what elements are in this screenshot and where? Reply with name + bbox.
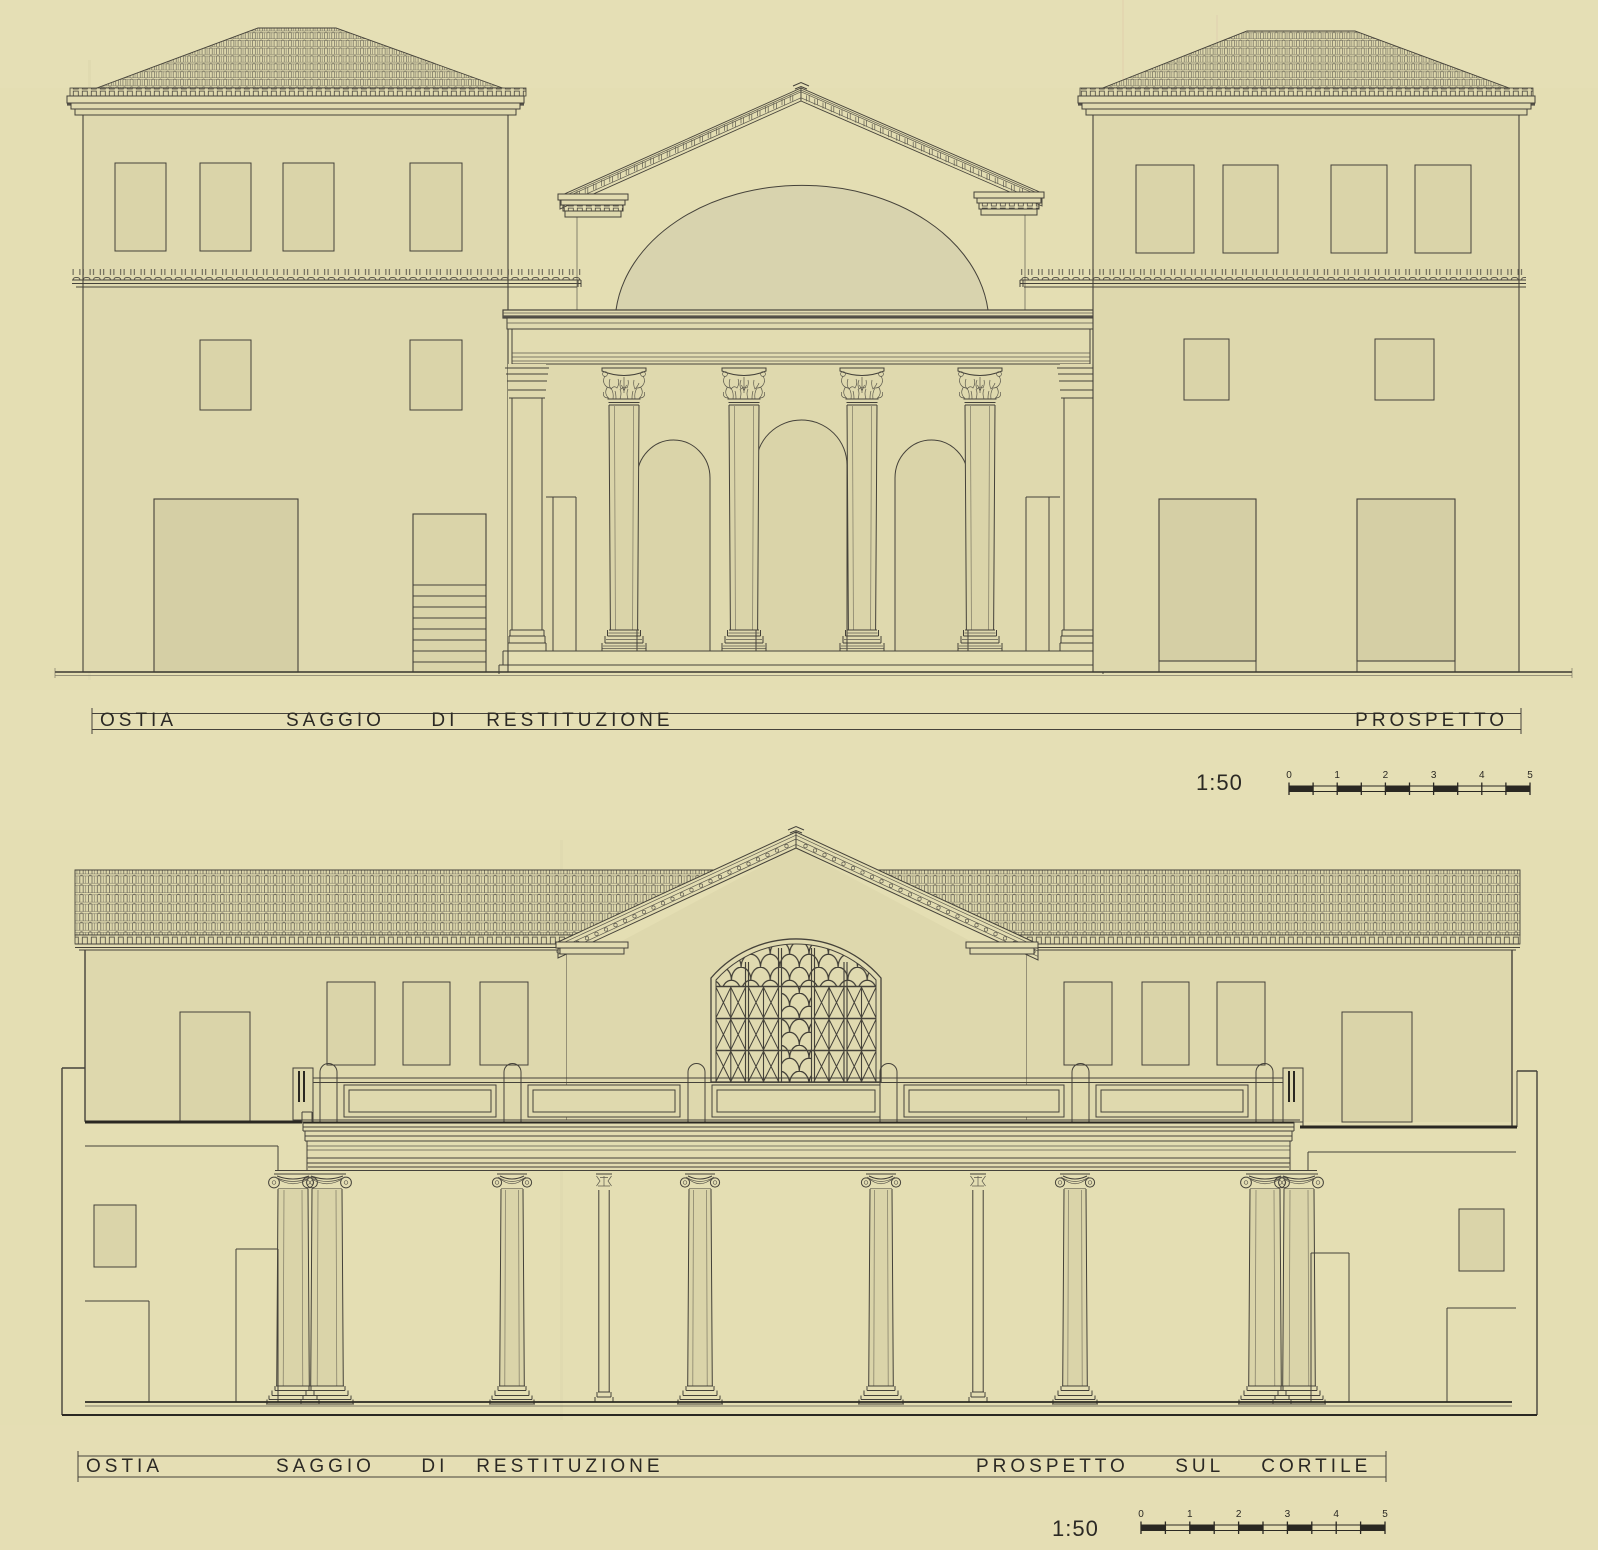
svg-text:OSTIA: OSTIA xyxy=(86,1456,163,1477)
svg-text:4: 4 xyxy=(1333,1509,1339,1520)
svg-text:2: 2 xyxy=(1383,770,1389,781)
svg-text:PROSPETTO: PROSPETTO xyxy=(1355,710,1508,731)
svg-text:3: 3 xyxy=(1285,1509,1291,1520)
svg-text:PROSPETTO SUL CORTILE: PROSPETTO SUL CORTILE xyxy=(976,1456,1371,1477)
svg-text:1:50: 1:50 xyxy=(1052,1516,1099,1541)
svg-text:OSTIA: OSTIA xyxy=(100,710,177,731)
svg-text:1: 1 xyxy=(1334,770,1340,781)
svg-text:2: 2 xyxy=(1236,1509,1242,1520)
svg-text:1: 1 xyxy=(1187,1509,1193,1520)
svg-text:5: 5 xyxy=(1382,1509,1388,1520)
svg-text:4: 4 xyxy=(1479,770,1485,781)
svg-text:0: 0 xyxy=(1138,1509,1144,1520)
svg-text:SAGGIO DI RESTITUZIONE: SAGGIO DI RESTITUZIONE xyxy=(286,710,674,731)
svg-text:5: 5 xyxy=(1527,770,1533,781)
svg-text:1:50: 1:50 xyxy=(1196,770,1243,795)
svg-text:0: 0 xyxy=(1286,770,1292,781)
svg-text:3: 3 xyxy=(1431,770,1437,781)
svg-text:SAGGIO DI RESTITUZIONE: SAGGIO DI RESTITUZIONE xyxy=(276,1456,664,1477)
